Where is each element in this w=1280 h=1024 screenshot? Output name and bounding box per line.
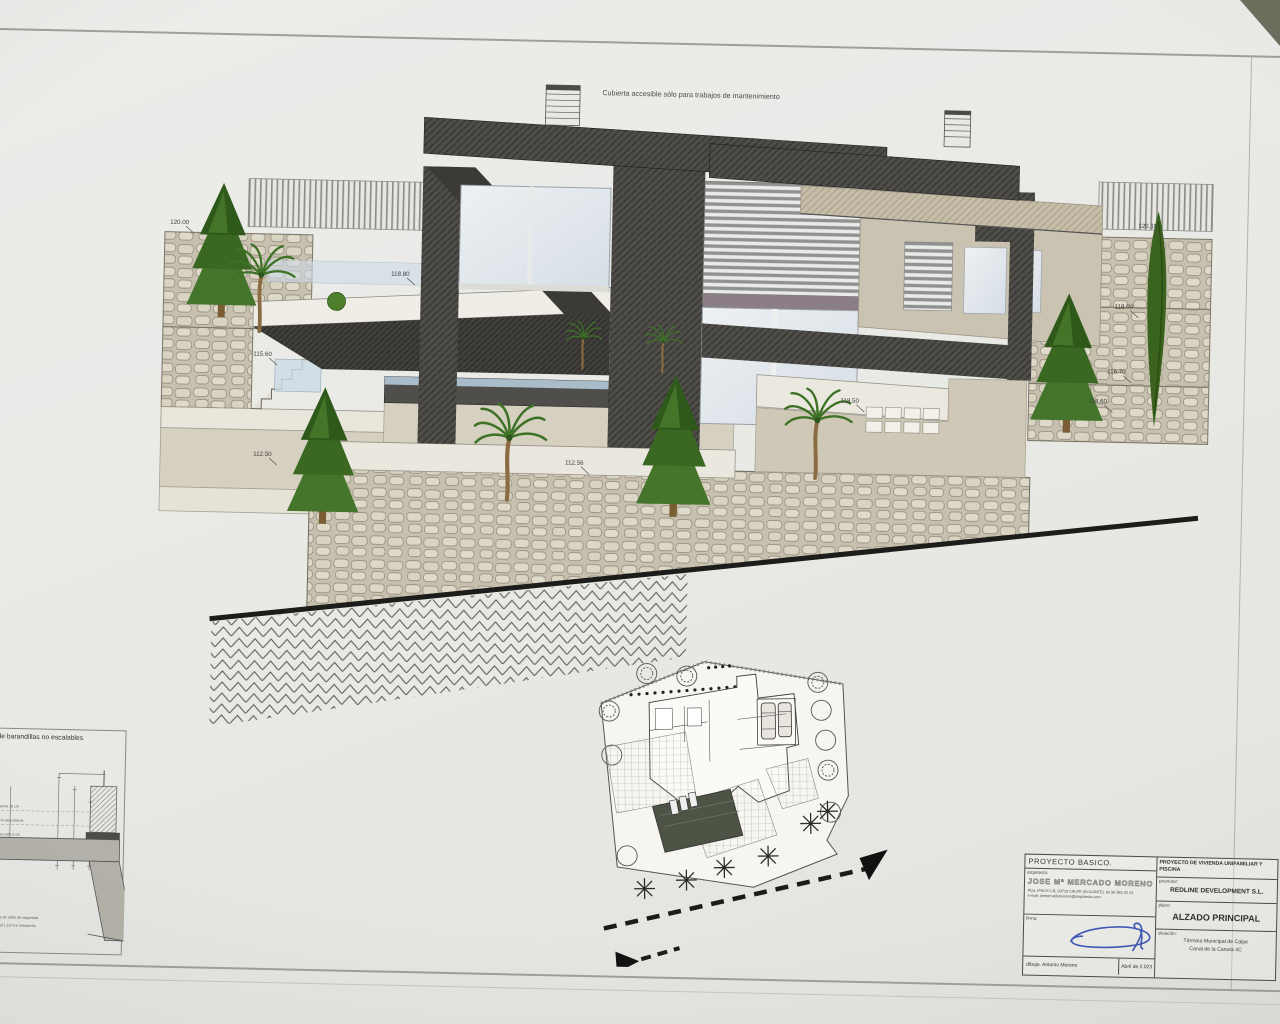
architect-name: JOSE Mª MERCADO MORENO [1025, 877, 1156, 889]
site-plan [587, 646, 894, 972]
level-label: 120.15 [1138, 223, 1158, 230]
svg-text:barandilla de vidrio de seguri: barandilla de vidrio de seguridad [0, 915, 38, 920]
level-label: 114.60 [1088, 398, 1107, 405]
level-label: 118.00 [1114, 303, 1133, 310]
level-label: 120.00 [170, 219, 190, 226]
shrub [327, 292, 345, 310]
firma-label: firma: [1026, 916, 1037, 921]
signature-cell: firma: [1023, 915, 1155, 960]
railing-detail: on de barandillas no escalables ø pasama… [0, 725, 128, 959]
svg-text:vidrio en la cara interna: vidrio en la cara interna [0, 818, 24, 823]
glass-railing-hatch [90, 786, 117, 833]
drawn-by: dibujo. Antonio Moreno [1023, 957, 1119, 975]
central-dark-column [607, 159, 705, 449]
architect-address: Plza. IFACH 2-B, 03710 CALPE (ALICANTE).… [1025, 889, 1156, 901]
window-upper-left [459, 185, 611, 291]
signature [1051, 919, 1172, 958]
photographed-plan-sheet: 120.00 118.80 115.60 112.50 112.56 118.5… [0, 0, 1280, 1024]
detail-bottom-notes: barandilla de vidrio de seguridad altura… [0, 915, 38, 928]
level-label: 116.70 [1107, 368, 1126, 375]
svg-text:ø pasamanos 10 cm: ø pasamanos 10 cm [0, 804, 19, 809]
sheet-name: ALZADO PRINCIPAL [1156, 911, 1276, 924]
title-block-left: PROYECTO BASICO. arquitecto: JOSE Mª MER… [1023, 855, 1157, 978]
sheet-name-cell: plano: ALZADO PRINCIPAL [1156, 901, 1277, 932]
level-label: 118.50 [840, 397, 859, 404]
main-elevation-drawing: 120.00 118.80 115.60 112.50 112.56 118.5… [149, 74, 1223, 747]
concrete-wall [88, 861, 129, 941]
promoter-name: REDLINE DEVELOPMENT S.L. [1157, 886, 1277, 896]
title-block-right: PROYECTO DE VIVIENDA UNIFAMILIAR Y PISCI… [1154, 857, 1278, 980]
site-plan-drawing [599, 660, 850, 899]
roof-note: Cubierta accesible sólo para trabajos de… [602, 88, 780, 101]
level-label: 112.50 [253, 451, 272, 458]
sheet-border-top [0, 27, 1280, 60]
slat-fence-left [248, 178, 427, 230]
promoter-cell: promotor: REDLINE DEVELOPMENT S.L. [1157, 877, 1277, 904]
date: Abril de 2.023 [1119, 959, 1154, 976]
north-arrow [859, 849, 888, 881]
level-label: 118.80 [391, 271, 410, 278]
drawn-by-cell: dibujo. Antonio Moreno Abril de 2.023 [1023, 957, 1154, 976]
project-title: PROYECTO DE VIVIENDA UNIFAMILIAR Y PISCI… [1157, 857, 1277, 880]
level-label: 112.56 [565, 459, 584, 466]
title-block: PROYECTO BASICO. arquitecto: JOSE Mª MER… [1022, 854, 1279, 982]
railing-cap [86, 832, 120, 840]
svg-text:altura total 1,10 m s/ antepec: altura total 1,10 m s/ antepecho [0, 923, 36, 928]
architect-label: arquitecto: [1027, 870, 1048, 875]
concrete-slab [0, 837, 120, 862]
architect-cell: arquitecto: JOSE Mª MERCADO MORENO Plza.… [1024, 869, 1156, 918]
sheet-border-bottom-2 [0, 974, 1280, 1006]
road-arrow [615, 952, 639, 973]
detail-left-notes: ø pasamanos 10 cm vidrio en la cara inte… [0, 804, 24, 837]
chimney-right [944, 111, 971, 148]
level-label: 115.60 [253, 351, 272, 358]
location-cell: situación: Término Municipal de Calpe Ca… [1155, 929, 1276, 980]
chimney-left [545, 85, 580, 126]
detail-title: on de barandillas no escalables [0, 733, 84, 742]
drawing-sheet: 120.00 118.80 115.60 112.50 112.56 118.5… [0, 0, 1280, 1024]
location-text: Término Municipal de Calpe Canal de la C… [1155, 937, 1275, 955]
sheet-border-right [1231, 55, 1253, 989]
